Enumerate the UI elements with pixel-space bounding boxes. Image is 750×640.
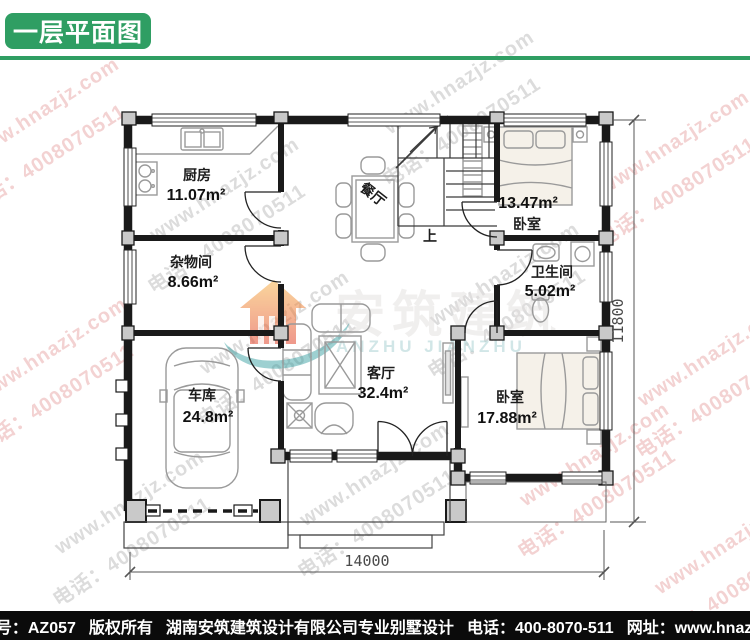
footer-bar: 本图编号：AZ057 版权所有 湖南安筑建筑设计有限公司专业别墅设计 电话：40… bbox=[0, 611, 750, 640]
area-living: 32.4m² bbox=[358, 385, 409, 402]
stove bbox=[134, 162, 157, 195]
bathroom-door bbox=[497, 250, 532, 285]
entrance-double-door bbox=[378, 422, 447, 457]
floor-plan: 安筑建筑 ANZHU JIANZHU bbox=[0, 0, 750, 640]
label-dining: 餐厅 bbox=[356, 179, 389, 209]
area-garage: 24.8m² bbox=[183, 409, 234, 426]
footer-website: 网址：www.hnazjz.com bbox=[627, 614, 750, 638]
dining-table bbox=[336, 157, 414, 261]
label-garage: 车库 bbox=[188, 387, 216, 403]
kitchen-counter bbox=[134, 126, 278, 154]
area-bedroom-bottom: 17.88m² bbox=[477, 410, 537, 427]
label-storage: 杂物间 bbox=[170, 254, 212, 270]
area-kitchen: 11.07m² bbox=[167, 187, 226, 204]
area-storage: 8.66m² bbox=[168, 274, 219, 291]
porch-steps bbox=[124, 460, 606, 548]
area-bedroom-top: 13.47m² bbox=[498, 195, 558, 212]
stairs-up-label: 上 bbox=[423, 228, 437, 244]
label-bathroom: 卫生间 bbox=[531, 264, 573, 280]
kitchen-door bbox=[245, 192, 281, 228]
label-living: 客厅 bbox=[366, 365, 395, 381]
dim-width: 14000 bbox=[344, 552, 389, 570]
area-bathroom: 5.02m² bbox=[525, 283, 576, 300]
dim-height: 11800 bbox=[609, 298, 627, 343]
label-kitchen: 厨房 bbox=[183, 167, 211, 183]
company-name: 湖南安筑建筑设计有限公司专业别墅设计 bbox=[166, 614, 454, 638]
bed-top bbox=[463, 126, 587, 205]
pilasters bbox=[116, 380, 252, 516]
label-bedroom-top: 卧室 bbox=[513, 216, 541, 232]
page: www.hnazjz.com电话：4008070511 www.hnazjz.c… bbox=[0, 0, 750, 640]
footer-phone: 电话：400-8070-511 bbox=[467, 614, 614, 638]
green-divider bbox=[0, 56, 750, 60]
doc-id: 本图编号：AZ057 bbox=[0, 614, 76, 638]
page-title: 一层平面图 bbox=[5, 13, 151, 49]
anzhu-logo: 安筑建筑 ANZHU JIANZHU bbox=[224, 280, 563, 369]
copyright: 版权所有 bbox=[89, 614, 153, 638]
storage-door bbox=[245, 246, 281, 282]
label-bedroom-bottom: 卧室 bbox=[496, 389, 524, 405]
